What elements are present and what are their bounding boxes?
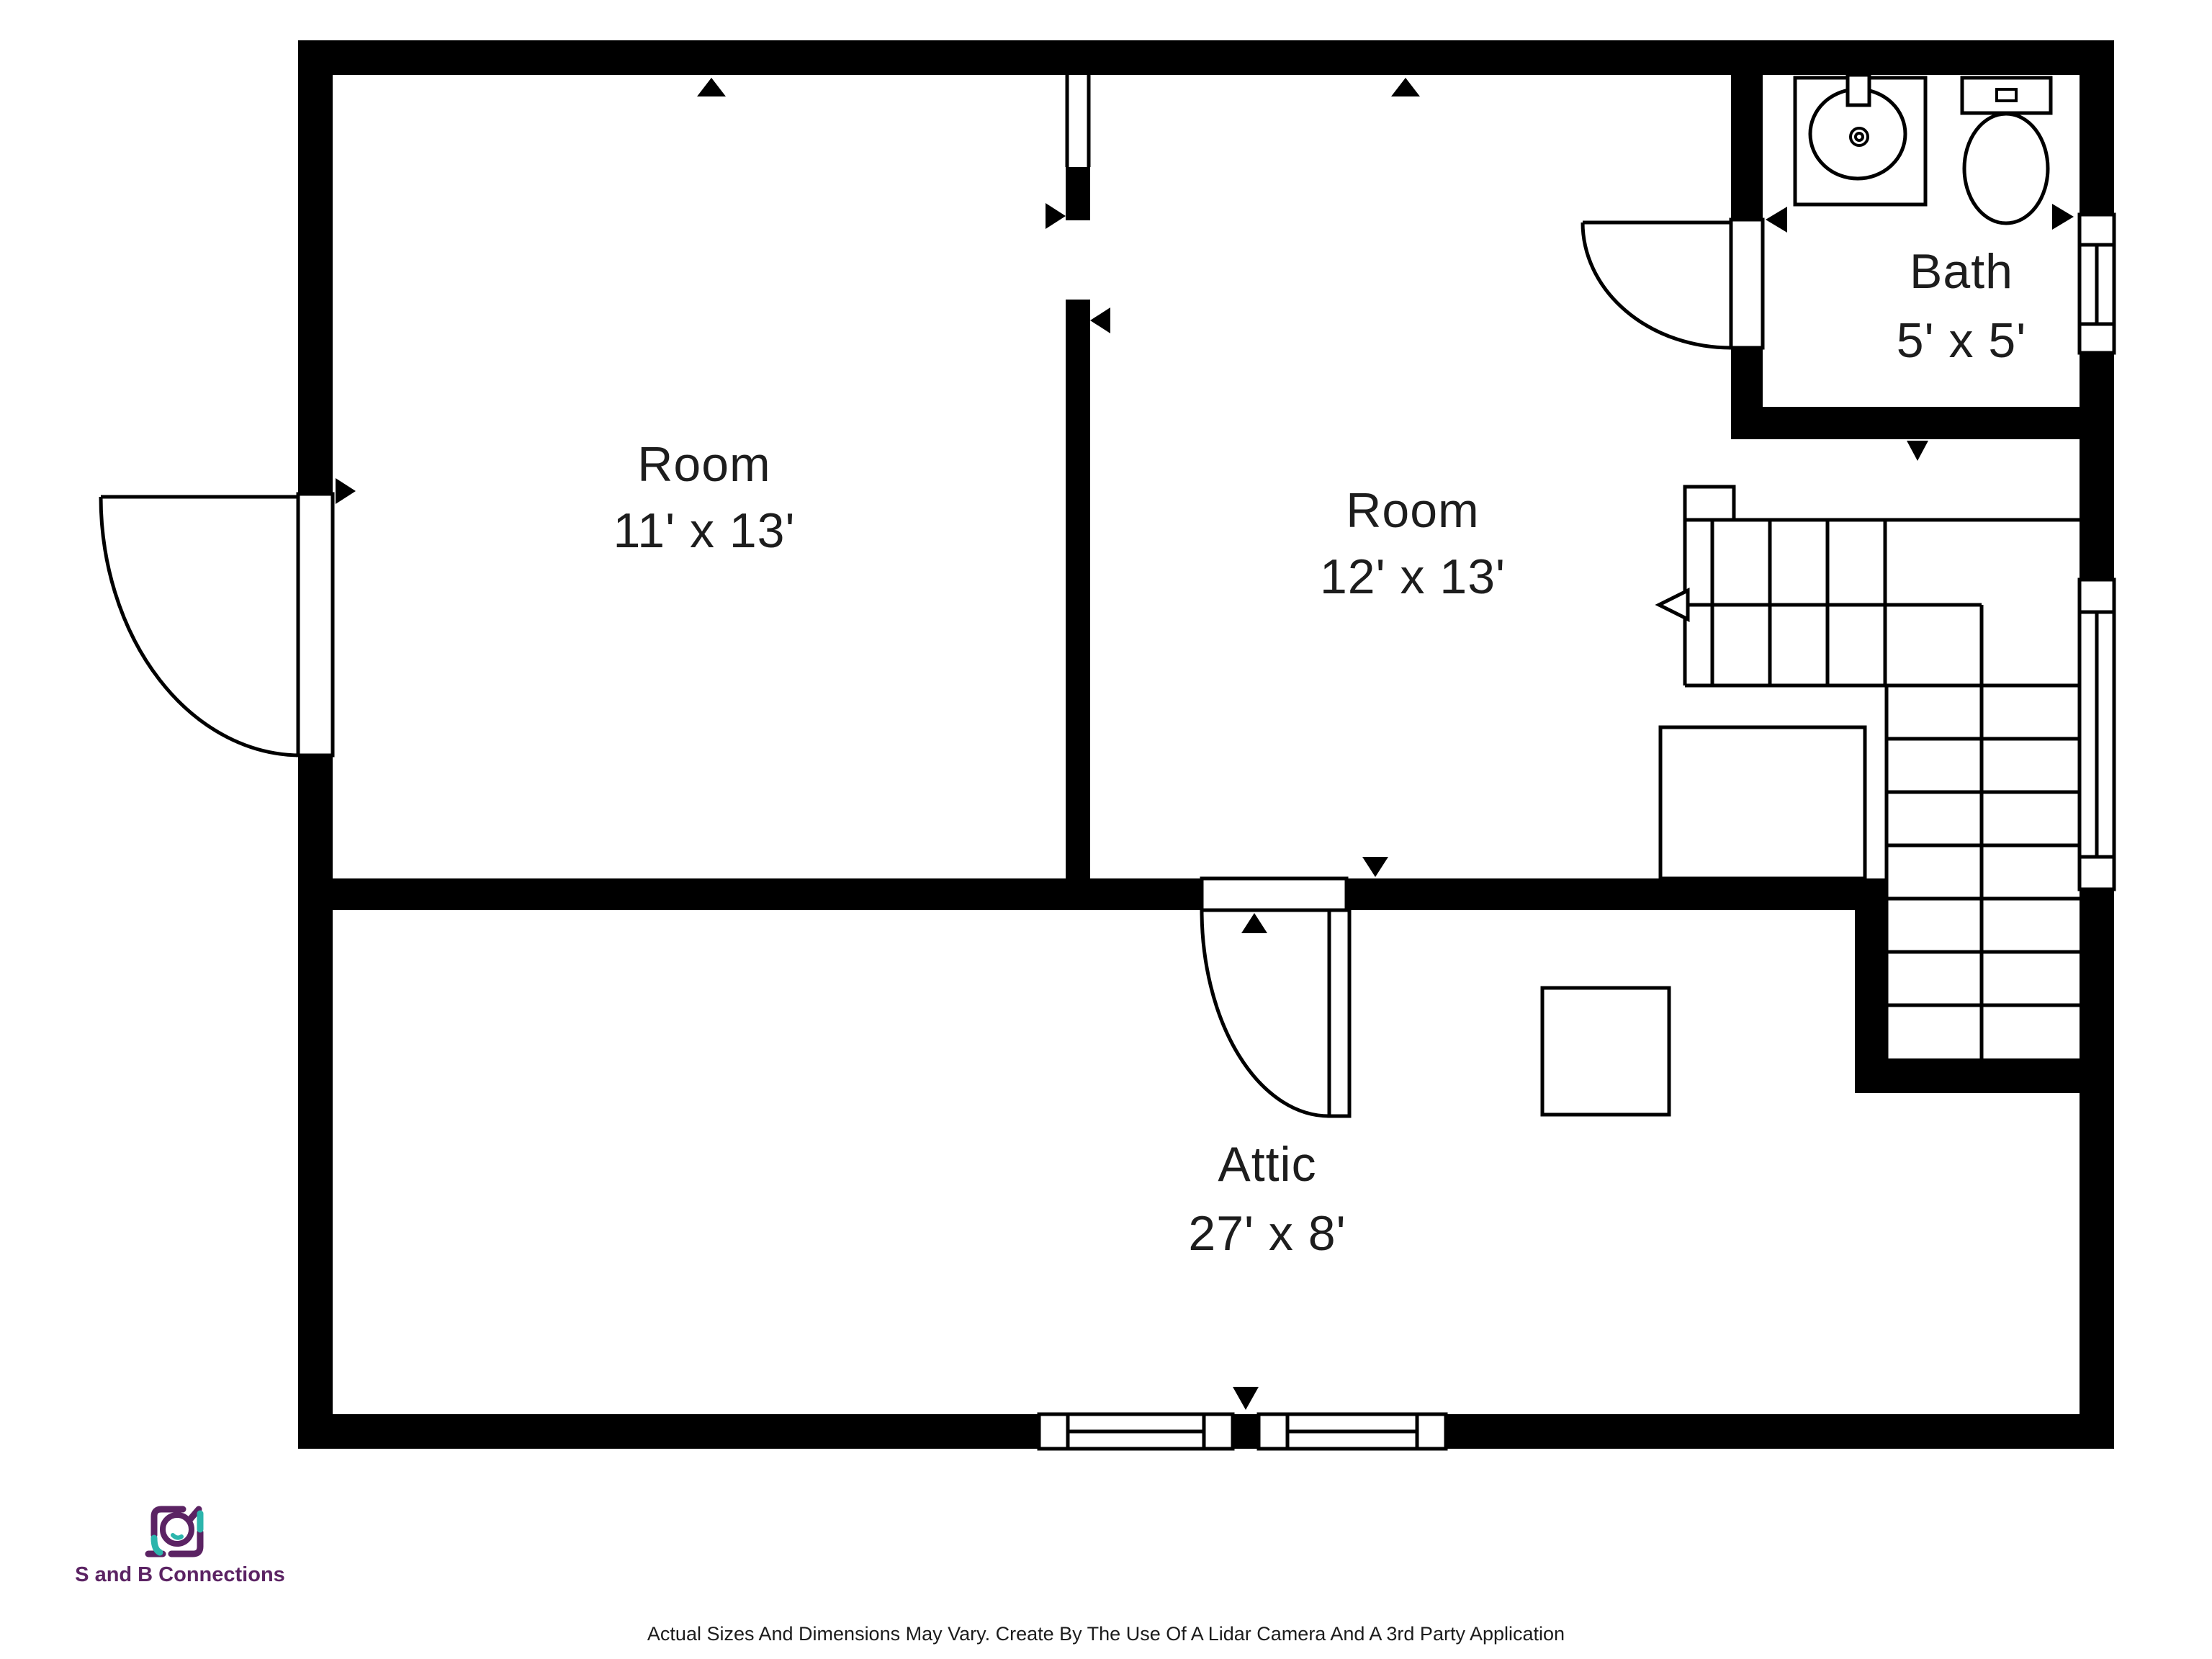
wall-right-lower	[2080, 889, 2114, 1449]
tick-down-bottom-windows-icon	[1233, 1387, 1259, 1410]
bath-wall-left-upper	[1731, 75, 1763, 220]
company-name: S and B Connections	[75, 1563, 285, 1586]
floor-plan: Room 11' x 13' Room 12' x 13' Bath 5' x …	[0, 0, 2212, 1659]
attic-dimensions: 27' x 8'	[1188, 1206, 1346, 1261]
wall-bottom-left	[298, 1414, 1039, 1449]
tick-right-interroom-icon	[1046, 203, 1066, 229]
interior-walls	[333, 75, 2080, 1093]
stair-void	[1660, 727, 1865, 878]
wall-right-upper	[2080, 40, 2114, 215]
bath-label: Bath	[1910, 244, 2013, 299]
interroom-wall-lower	[1066, 300, 1090, 910]
stair-wall-bottom	[1887, 1058, 2080, 1093]
tick-left-interroom-icon	[1090, 307, 1110, 333]
tick-up-room2-icon	[1391, 78, 1420, 96]
tick-left-bath-door-icon	[1766, 207, 1787, 233]
room-1-label: Room	[637, 437, 770, 492]
tick-down-attic-door-icon	[1362, 857, 1388, 877]
camera-logo-icon	[148, 1509, 200, 1554]
sink-icon	[1795, 75, 1925, 204]
entry-door	[101, 494, 333, 755]
toilet-icon	[1962, 78, 2051, 223]
company-logo: S and B Connections	[75, 1509, 285, 1586]
stair-window-icon	[2080, 580, 2114, 889]
disclaimer-text: Actual Sizes And Dimensions May Vary. Cr…	[647, 1623, 1565, 1645]
floor-plan-page: Room 11' x 13' Room 12' x 13' Bath 5' x …	[0, 0, 2212, 1659]
chimney-box	[1542, 988, 1669, 1115]
wall-left-upper	[298, 40, 333, 494]
tick-right-bath-window-icon	[2052, 204, 2074, 230]
stair-wall-left	[1855, 910, 1887, 1093]
interroom-wall-upper	[1066, 167, 1090, 220]
attic-window-right-icon	[1259, 1414, 1446, 1449]
bath-window-icon	[2080, 215, 2114, 353]
attic-door-leaf	[1329, 910, 1349, 1116]
windows	[1039, 215, 2114, 1449]
wall-bottom-right	[1446, 1414, 2114, 1449]
room-2-dimensions: 12' x 13'	[1320, 549, 1506, 604]
room-2-label: Room	[1346, 483, 1479, 538]
bath-wall-bottom	[1731, 407, 2080, 439]
entry-door-swing-icon	[101, 497, 301, 755]
room-1-dimensions: 11' x 13'	[613, 503, 796, 558]
bath-door-swing-icon	[1583, 222, 1731, 348]
wall-left-lower	[298, 755, 333, 1449]
bath-fixtures	[1795, 75, 2051, 223]
stair-start-step	[1685, 487, 1734, 520]
bath-dimensions: 5' x 5'	[1897, 313, 2026, 368]
bath-door-leaf	[1731, 220, 1763, 348]
wall-bottom-mid	[1233, 1414, 1259, 1449]
stair-direction-arrow-icon	[1659, 590, 1688, 619]
tick-up-room1-icon	[697, 78, 726, 96]
attic-door-opening	[1202, 878, 1346, 910]
tick-up-attic-door-icon	[1241, 913, 1267, 933]
attic-label: Attic	[1218, 1137, 1316, 1192]
attic-divider-wall-left	[333, 878, 1202, 910]
entry-door-leaf	[298, 494, 333, 755]
attic-window-left-icon	[1039, 1414, 1233, 1449]
wall-top	[298, 40, 2114, 75]
bath-door	[1583, 220, 1763, 348]
tick-right-entry-door-icon	[336, 478, 356, 504]
tick-down-bath-wall-icon	[1907, 441, 1928, 461]
attic-door-swing-icon	[1202, 910, 1329, 1116]
attic-door	[1202, 878, 1349, 1116]
wall-right-mid	[2080, 353, 2114, 580]
attic-divider-wall-right	[1346, 878, 1887, 910]
